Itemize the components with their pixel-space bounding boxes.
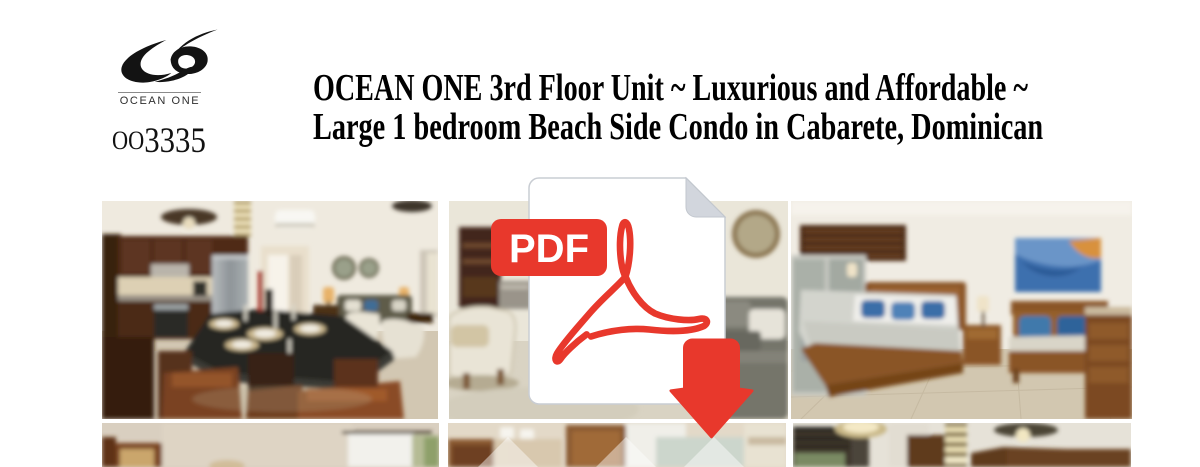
svg-text:PDF: PDF xyxy=(509,227,589,271)
